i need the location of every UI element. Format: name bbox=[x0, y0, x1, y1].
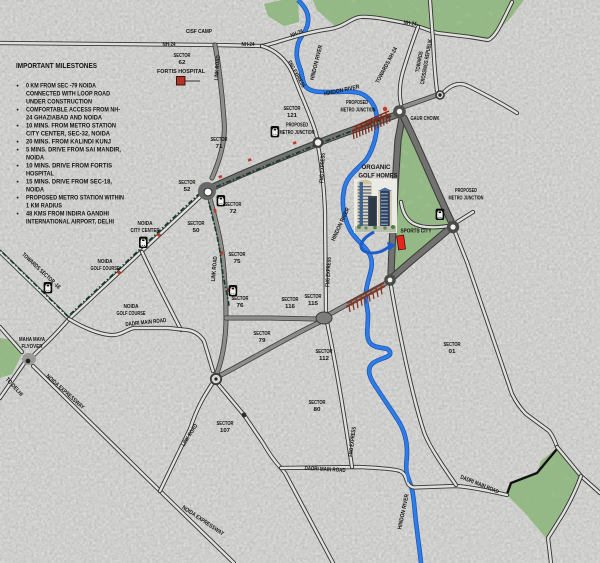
svg-text:METRO JUNCTION: METRO JUNCTION bbox=[280, 130, 315, 136]
svg-text:ORGANIC: ORGANIC bbox=[362, 164, 391, 171]
svg-text:SECTOR: SECTOR bbox=[188, 221, 206, 227]
svg-text:52: 52 bbox=[184, 187, 191, 193]
svg-text:SECTOR: SECTOR bbox=[229, 252, 247, 258]
svg-text:24 GHAZIABAD AND NOIDA: 24 GHAZIABAD AND NOIDA bbox=[26, 115, 102, 122]
svg-text:CITY CENTER, SEC-32, NOIDA: CITY CENTER, SEC-32, NOIDA bbox=[26, 131, 110, 138]
svg-text:GAUR CHOWK: GAUR CHOWK bbox=[411, 116, 441, 122]
svg-text:PROPOSED: PROPOSED bbox=[346, 100, 368, 106]
svg-text:PROPOSED METRO STATION WITHIN: PROPOSED METRO STATION WITHIN bbox=[26, 195, 124, 202]
svg-text:SECTOR: SECTOR bbox=[174, 53, 192, 59]
svg-text:NOIDA: NOIDA bbox=[26, 187, 44, 194]
svg-text:10 MINS. DRIVE FROM FORTIS: 10 MINS. DRIVE FROM FORTIS bbox=[26, 163, 112, 170]
svg-text:•: • bbox=[17, 147, 19, 154]
svg-text:1 KM RADIUS: 1 KM RADIUS bbox=[26, 203, 62, 210]
svg-text:PROPOSED: PROPOSED bbox=[455, 188, 477, 194]
svg-text:GOLF COURSE: GOLF COURSE bbox=[91, 266, 120, 272]
svg-text:PROPOSED: PROPOSED bbox=[286, 123, 308, 129]
svg-text:•: • bbox=[17, 139, 19, 146]
svg-text:SECTOR: SECTOR bbox=[232, 296, 250, 302]
svg-text:NH-24: NH-24 bbox=[163, 42, 177, 48]
svg-text:•: • bbox=[17, 107, 19, 114]
svg-text:GOLF HOMES: GOLF HOMES bbox=[359, 173, 399, 180]
svg-text:10 MINS. FROM METRO STATION: 10 MINS. FROM METRO STATION bbox=[26, 123, 116, 130]
svg-text:•: • bbox=[17, 163, 19, 170]
svg-text:IMPORTANT MILESTONES: IMPORTANT MILESTONES bbox=[16, 61, 97, 70]
svg-text:SECTOR: SECTOR bbox=[316, 349, 334, 355]
svg-text:121: 121 bbox=[287, 113, 298, 119]
svg-text:50: 50 bbox=[193, 228, 200, 234]
svg-text:SECTOR: SECTOR bbox=[217, 421, 235, 427]
svg-text:CITY CENTER: CITY CENTER bbox=[131, 228, 161, 234]
svg-text:75: 75 bbox=[234, 259, 242, 265]
svg-text:SECTOR: SECTOR bbox=[179, 180, 197, 186]
svg-text:76: 76 bbox=[237, 303, 245, 309]
svg-text:METRO JUNCTION: METRO JUNCTION bbox=[341, 108, 376, 114]
svg-text:CONNECTED WITH LOOP ROAD: CONNECTED WITH LOOP ROAD bbox=[26, 91, 110, 98]
svg-text:•: • bbox=[17, 123, 19, 130]
svg-text:62: 62 bbox=[179, 60, 186, 66]
svg-text:METRO JUNCTION: METRO JUNCTION bbox=[449, 196, 484, 202]
svg-text:80: 80 bbox=[314, 407, 321, 413]
svg-text:15 MINS. DRIVE FROM SEC-18,: 15 MINS. DRIVE FROM SEC-18, bbox=[26, 179, 112, 186]
svg-text:NOIDA: NOIDA bbox=[98, 259, 114, 265]
svg-text:NH-24: NH-24 bbox=[242, 42, 256, 48]
svg-text:SECTOR: SECTOR bbox=[444, 342, 462, 348]
svg-text:•: • bbox=[17, 195, 19, 202]
svg-text:CISF CAMP: CISF CAMP bbox=[186, 29, 212, 35]
svg-text:NOIDA: NOIDA bbox=[26, 155, 44, 162]
svg-text:SECTOR: SECTOR bbox=[282, 297, 300, 303]
svg-text:20 MINS. FROM KALINDI KUNJ: 20 MINS. FROM KALINDI KUNJ bbox=[26, 139, 112, 146]
svg-text:48 KMS FROM INDIRA GANDHI: 48 KMS FROM INDIRA GANDHI bbox=[26, 211, 109, 218]
svg-text:•: • bbox=[17, 179, 19, 186]
svg-text:116: 116 bbox=[285, 304, 296, 310]
svg-text:NOIDA: NOIDA bbox=[124, 304, 140, 310]
svg-text:INTERNATIONAL AIRPORT, DELHI: INTERNATIONAL AIRPORT, DELHI bbox=[26, 219, 114, 226]
svg-text:71: 71 bbox=[216, 144, 224, 150]
svg-text:79: 79 bbox=[259, 338, 267, 344]
svg-text:115: 115 bbox=[308, 301, 319, 307]
svg-text:SECTOR: SECTOR bbox=[225, 202, 243, 208]
svg-text:•: • bbox=[17, 211, 19, 218]
svg-text:72: 72 bbox=[230, 209, 237, 215]
svg-text:107: 107 bbox=[220, 428, 230, 434]
svg-text:5 MINS. DRIVE FROM SAI MANDIR,: 5 MINS. DRIVE FROM SAI MANDIR, bbox=[26, 147, 121, 154]
svg-text:SECTOR: SECTOR bbox=[309, 400, 327, 406]
svg-text:SPORTS CITY: SPORTS CITY bbox=[401, 229, 432, 235]
svg-text:SECTOR: SECTOR bbox=[284, 106, 302, 112]
svg-text:•: • bbox=[17, 83, 19, 90]
svg-text:HOSPITAL: HOSPITAL bbox=[26, 171, 54, 178]
svg-text:FORTIS HOSPITAL: FORTIS HOSPITAL bbox=[157, 69, 205, 75]
svg-text:SECTOR: SECTOR bbox=[254, 331, 272, 337]
svg-text:SECTOR: SECTOR bbox=[305, 294, 323, 300]
svg-text:COMFORTABLE ACCESS FROM NH-: COMFORTABLE ACCESS FROM NH- bbox=[26, 107, 120, 114]
svg-text:MAHA MAYA: MAHA MAYA bbox=[19, 337, 46, 343]
svg-text:112: 112 bbox=[319, 356, 329, 362]
svg-text:UNDER CONSTRUCTION: UNDER CONSTRUCTION bbox=[26, 99, 92, 106]
svg-text:GOLF COURSE: GOLF COURSE bbox=[117, 311, 146, 317]
svg-text:0 KM FROM SEC -79 NOIDA: 0 KM FROM SEC -79 NOIDA bbox=[26, 83, 96, 90]
svg-text:NOIDA: NOIDA bbox=[138, 221, 154, 227]
svg-text:FLYOVER: FLYOVER bbox=[22, 344, 44, 350]
svg-text:SECTOR: SECTOR bbox=[211, 137, 229, 143]
svg-text:01: 01 bbox=[449, 349, 457, 355]
